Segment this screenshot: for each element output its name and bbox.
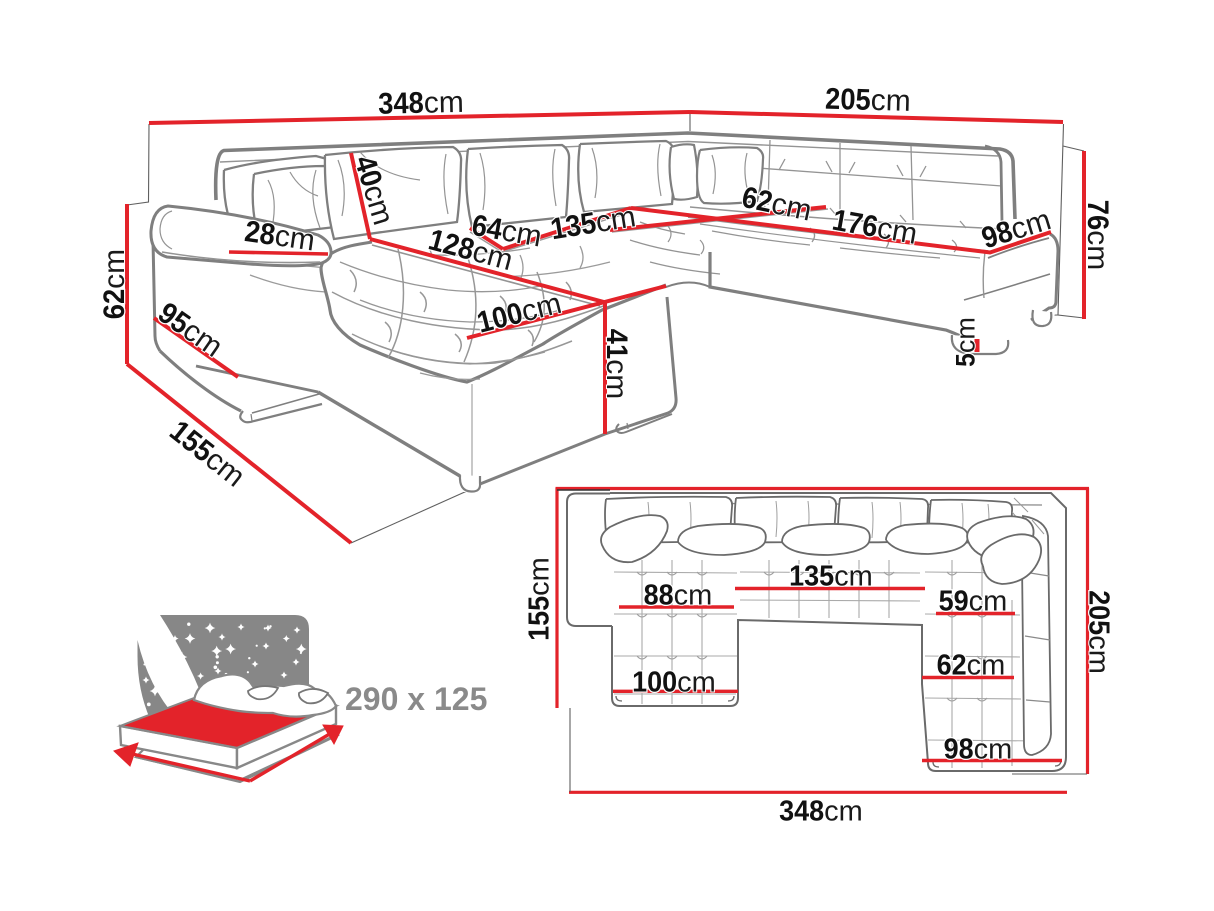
svg-text:cm: cm [875,212,920,251]
svg-text:62: 62 [98,289,131,319]
svg-text:cm: cm [273,219,317,257]
svg-text:cm: cm [974,733,1013,765]
svg-text:cm: cm [600,359,633,399]
svg-text:cm: cm [499,214,544,253]
svg-text:205: 205 [825,83,871,117]
svg-text:cm: cm [674,579,713,611]
svg-text:88: 88 [644,579,674,611]
svg-text:cm: cm [593,200,638,239]
svg-text:135: 135 [789,560,834,592]
svg-text:cm: cm [834,560,873,592]
svg-text:cm: cm [870,84,911,118]
svg-text:cm: cm [969,585,1008,617]
svg-text:5: 5 [951,353,981,367]
svg-text:348: 348 [378,87,424,121]
svg-text:41: 41 [600,329,633,359]
svg-text:cm: cm [824,795,863,827]
svg-text:cm: cm [967,649,1006,681]
svg-text:155: 155 [523,596,555,641]
svg-text:59: 59 [939,585,969,617]
svg-text:135: 135 [548,207,598,247]
svg-text:205: 205 [1083,590,1115,635]
svg-text:cm: cm [1081,230,1114,270]
svg-text:cm: cm [951,317,981,353]
svg-text:100: 100 [632,666,677,698]
svg-text:290 x 125: 290 x 125 [345,681,487,717]
svg-text:cm: cm [1083,635,1115,674]
svg-text:cm: cm [677,666,716,698]
svg-text:76: 76 [1081,200,1114,230]
svg-text:cm: cm [98,249,131,289]
svg-text:28: 28 [243,215,278,252]
svg-text:62: 62 [937,649,967,681]
svg-text:98: 98 [944,733,974,765]
svg-text:cm: cm [523,557,555,596]
svg-text:cm: cm [423,86,464,120]
svg-text:348: 348 [779,795,824,827]
